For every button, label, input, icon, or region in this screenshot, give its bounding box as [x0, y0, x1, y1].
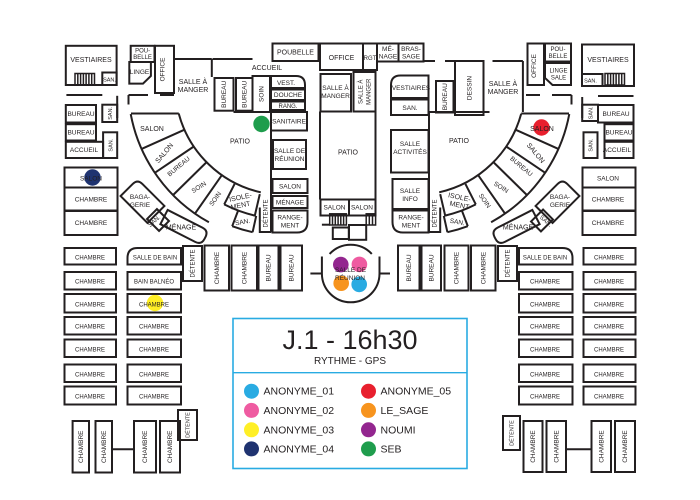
svg-text:SALON: SALON — [597, 176, 619, 183]
svg-text:DÉTENTE: DÉTENTE — [185, 412, 192, 438]
svg-text:CHAMBRE: CHAMBRE — [530, 347, 560, 353]
svg-text:CHAMBRE: CHAMBRE — [594, 255, 624, 261]
svg-text:CHAMBRE: CHAMBRE — [75, 394, 105, 400]
svg-text:SAN.: SAN. — [588, 106, 594, 119]
svg-text:POU-: POU- — [135, 49, 150, 55]
svg-text:CHAMBRE: CHAMBRE — [530, 302, 560, 308]
svg-text:CHAMBRE: CHAMBRE — [241, 251, 248, 284]
svg-text:CHAMBRE: CHAMBRE — [75, 372, 105, 378]
svg-text:SANITAIRE: SANITAIRE — [272, 119, 306, 126]
svg-text:SALLE: SALLE — [400, 141, 421, 148]
svg-text:MANGER: MANGER — [321, 93, 350, 100]
svg-text:ACCUEIL: ACCUEIL — [603, 147, 632, 154]
svg-text:SALLE DE: SALLE DE — [335, 267, 367, 274]
svg-text:VEST.: VEST. — [277, 80, 295, 87]
svg-text:BELLE: BELLE — [549, 54, 568, 60]
svg-text:POU-: POU- — [551, 47, 566, 53]
svg-text:CHAMBRE: CHAMBRE — [553, 430, 560, 463]
svg-text:CHAMBRE: CHAMBRE — [142, 430, 149, 463]
svg-text:MENT: MENT — [281, 223, 299, 230]
svg-text:BUREAU: BUREAU — [288, 254, 295, 281]
svg-text:CHAMBRE: CHAMBRE — [592, 197, 625, 204]
svg-text:ACCUEIL: ACCUEIL — [70, 147, 99, 154]
svg-text:BUREAU: BUREAU — [266, 254, 273, 281]
svg-text:CHAMBRE: CHAMBRE — [75, 279, 105, 285]
svg-text:CHAMBRE: CHAMBRE — [530, 394, 560, 400]
svg-text:CHAMBRE: CHAMBRE — [622, 430, 629, 463]
svg-text:CHAMBRE: CHAMBRE — [139, 347, 169, 353]
svg-text:BUREAU: BUREAU — [221, 81, 228, 108]
svg-text:SAGE: SAGE — [402, 54, 421, 61]
svg-text:SALLE DE BAIN: SALLE DE BAIN — [523, 256, 567, 262]
svg-text:NAGE: NAGE — [379, 54, 398, 61]
svg-text:SALLE DE BAIN: SALLE DE BAIN — [133, 256, 177, 262]
svg-text:CHAMBRE: CHAMBRE — [530, 430, 537, 463]
svg-text:VESTIAIRES: VESTIAIRES — [392, 85, 431, 92]
svg-text:CHAMBRE: CHAMBRE — [78, 430, 85, 463]
svg-text:CHAMBRE: CHAMBRE — [594, 302, 624, 308]
svg-text:CHAMBRE: CHAMBRE — [480, 251, 487, 284]
svg-text:SAN.: SAN. — [589, 138, 595, 151]
svg-text:CHAMBRE: CHAMBRE — [75, 324, 105, 330]
svg-text:SALLE À: SALLE À — [322, 83, 349, 92]
svg-text:CHAMBRE: CHAMBRE — [594, 279, 624, 285]
svg-text:BUREAU: BUREAU — [428, 254, 435, 281]
svg-text:LINGE: LINGE — [130, 69, 150, 76]
svg-text:MENT: MENT — [402, 223, 420, 230]
svg-text:MANGER: MANGER — [178, 87, 209, 94]
svg-text:CHAMBRE: CHAMBRE — [594, 347, 624, 353]
svg-text:RANGE-: RANGE- — [398, 215, 423, 222]
svg-text:SAN.: SAN. — [108, 138, 114, 151]
svg-text:DÉTENTE: DÉTENTE — [505, 249, 512, 277]
svg-text:CHAMBRE: CHAMBRE — [598, 430, 605, 463]
svg-text:CHAMBRE: CHAMBRE — [139, 372, 169, 378]
svg-text:OFFICE: OFFICE — [531, 53, 538, 77]
svg-text:PATIO: PATIO — [449, 138, 470, 145]
svg-text:BUREAU: BUREAU — [67, 130, 94, 137]
svg-text:MÉNAGE: MÉNAGE — [166, 223, 197, 232]
svg-text:BUREAU: BUREAU — [442, 83, 449, 110]
svg-text:SAN.: SAN. — [584, 79, 597, 85]
svg-text:CHAMBRE: CHAMBRE — [167, 430, 174, 463]
svg-text:ANONYME_01: ANONYME_01 — [264, 386, 335, 398]
svg-text:RÉUNION: RÉUNION — [335, 273, 365, 282]
svg-text:SALLE: SALLE — [400, 188, 421, 195]
svg-text:SAN.: SAN. — [103, 78, 116, 84]
svg-text:NOUMI: NOUMI — [381, 424, 416, 436]
svg-text:DESSIN: DESSIN — [466, 76, 473, 101]
svg-text:PATIO: PATIO — [338, 150, 359, 157]
svg-text:CHAMBRE: CHAMBRE — [139, 302, 169, 308]
svg-text:CHAMBRE: CHAMBRE — [530, 324, 560, 330]
svg-text:BUREAU: BUREAU — [602, 111, 629, 118]
svg-text:ANONYME_04: ANONYME_04 — [264, 443, 335, 455]
svg-text:SALLE À: SALLE À — [358, 80, 365, 104]
svg-text:SALON: SALON — [530, 126, 554, 133]
svg-text:BAGA-: BAGA- — [130, 194, 150, 201]
svg-text:LINGE: LINGE — [549, 69, 567, 75]
svg-text:MANGER: MANGER — [488, 89, 519, 96]
svg-text:CHAMBRE: CHAMBRE — [454, 251, 461, 284]
svg-text:RANGE-: RANGE- — [277, 215, 302, 222]
svg-text:LE_SAGE: LE_SAGE — [381, 405, 429, 417]
svg-text:RÉUNION: RÉUNION — [275, 154, 305, 163]
svg-text:GERIE: GERIE — [130, 202, 151, 209]
svg-text:VESTIAIRES: VESTIAIRES — [587, 57, 629, 64]
svg-text:OFFICE: OFFICE — [160, 57, 167, 81]
svg-text:SALLE À: SALLE À — [489, 79, 518, 88]
svg-text:RYTHME - GPS: RYTHME - GPS — [314, 356, 386, 367]
svg-text:CHAMBRE: CHAMBRE — [530, 279, 560, 285]
svg-text:DOUCHE: DOUCHE — [274, 92, 303, 99]
svg-text:CHAMBRE: CHAMBRE — [594, 394, 624, 400]
svg-text:SEB: SEB — [381, 443, 402, 455]
svg-text:BRAS-: BRAS- — [401, 46, 421, 53]
svg-text:PATIO: PATIO — [230, 139, 251, 146]
svg-text:J.1 - 16h30: J.1 - 16h30 — [282, 325, 417, 355]
svg-text:BUREAU: BUREAU — [406, 254, 413, 281]
svg-text:POUBELLE: POUBELLE — [277, 50, 314, 57]
svg-text:DÉTENTE: DÉTENTE — [263, 199, 270, 227]
svg-text:CHAMBRE: CHAMBRE — [594, 372, 624, 378]
svg-text:CHAMBRE: CHAMBRE — [592, 220, 625, 227]
svg-text:BUREAU: BUREAU — [605, 130, 632, 137]
svg-text:ANONYME_02: ANONYME_02 — [264, 405, 335, 417]
svg-text:SALE: SALE — [551, 76, 566, 82]
svg-text:GERIE: GERIE — [550, 202, 571, 209]
svg-text:BAGA-: BAGA- — [550, 194, 570, 201]
svg-text:SALON: SALON — [80, 176, 102, 183]
svg-text:CHAMBRE: CHAMBRE — [139, 324, 169, 330]
svg-text:MÉNAGE: MÉNAGE — [503, 223, 534, 232]
svg-text:CHAMBRE: CHAMBRE — [530, 372, 560, 378]
svg-text:CHAMBRE: CHAMBRE — [75, 197, 108, 204]
svg-text:CHAMBRE: CHAMBRE — [214, 251, 221, 284]
svg-text:ANONYME_03: ANONYME_03 — [264, 424, 335, 436]
svg-text:BUREAU: BUREAU — [241, 81, 248, 108]
svg-text:SALON: SALON — [140, 126, 164, 133]
svg-text:SAN.: SAN. — [402, 105, 417, 112]
svg-text:DÉTENTE: DÉTENTE — [509, 420, 516, 446]
svg-text:OFFICE: OFFICE — [329, 55, 355, 62]
svg-text:CHAMBRE: CHAMBRE — [75, 255, 105, 261]
svg-text:ANONYME_05: ANONYME_05 — [381, 386, 452, 398]
svg-text:SALON: SALON — [279, 184, 301, 191]
svg-text:CHAMBRE: CHAMBRE — [139, 394, 169, 400]
svg-text:DÉTENTE: DÉTENTE — [432, 199, 439, 227]
svg-text:CHAMBRE: CHAMBRE — [75, 220, 108, 227]
svg-text:RANG.: RANG. — [278, 104, 297, 110]
svg-text:CHAMBRE: CHAMBRE — [75, 302, 105, 308]
svg-text:CHAMBRE: CHAMBRE — [101, 430, 108, 463]
svg-text:BELLE: BELLE — [133, 55, 152, 61]
svg-text:SALLE DE: SALLE DE — [274, 148, 306, 155]
svg-text:INFO: INFO — [402, 196, 418, 203]
svg-text:SAN.: SAN. — [108, 106, 114, 119]
svg-text:SALON: SALON — [323, 205, 345, 212]
svg-text:DÉTENTE: DÉTENTE — [190, 249, 197, 277]
svg-text:MANGER: MANGER — [367, 78, 373, 105]
svg-text:SALON: SALON — [351, 205, 373, 212]
svg-text:BUREAU: BUREAU — [67, 111, 94, 118]
svg-text:BAIN BALNÉO: BAIN BALNÉO — [134, 279, 174, 286]
svg-text:SALLE À: SALLE À — [179, 77, 208, 86]
svg-text:ACTIVITÉS: ACTIVITÉS — [393, 147, 427, 156]
svg-text:RGT: RGT — [364, 56, 377, 62]
svg-text:ACCUEIL: ACCUEIL — [252, 65, 282, 72]
svg-text:SOIN: SOIN — [258, 86, 265, 102]
svg-text:MÉNAGE: MÉNAGE — [276, 198, 305, 207]
svg-text:CHAMBRE: CHAMBRE — [594, 324, 624, 330]
svg-text:CHAMBRE: CHAMBRE — [75, 347, 105, 353]
svg-text:VESTIAIRES: VESTIAIRES — [70, 57, 112, 64]
svg-text:MÉ-: MÉ- — [382, 44, 394, 53]
